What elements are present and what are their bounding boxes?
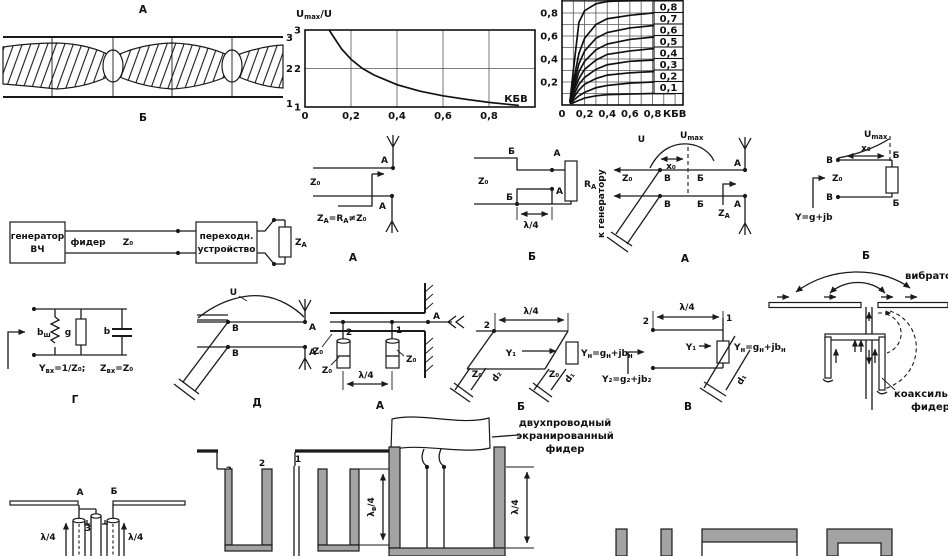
section-open [616,529,627,556]
y1-label: Y₁ [685,343,697,353]
line-section [467,331,568,369]
svg-text:0,2: 0,2 [342,111,360,122]
za-label: ZА [295,238,308,249]
diagram-stub-match-a: U Umax x₀ Z₀ В Б А В Б А ZА А [607,131,751,265]
z0-stub2-label: Z₀ [406,355,417,365]
shielded-label-1: двухпроводный [519,418,612,429]
figure-canvas: А 3 2 1 Б Umax/U КБВ 00,20,40,60,8123 КБ… [0,0,948,556]
caption: А [681,253,690,265]
diagram-stub-match-d: U В В А А Д [174,288,316,409]
svg-text:0: 0 [302,111,309,122]
label-2: 2 [286,64,293,75]
svg-text:0,2: 0,2 [540,77,558,88]
caption: Г [72,394,79,406]
point-a: А [433,312,440,322]
point-a: А [77,488,84,498]
dipole-arm-right [113,501,185,505]
caption: А [349,252,358,264]
svg-text:0,2: 0,2 [660,71,678,82]
chart-umax-kbv: Umax/U КБВ 00,20,40,60,8123 [294,9,535,122]
stub-right [529,369,566,402]
lambda-left: λ/4 [40,533,55,543]
ra-label: RА [584,180,597,191]
figure-page: А 3 2 1 Б Umax/U КБВ 00,20,40,60,8123 КБ… [0,0,948,556]
point-v1: В [826,156,833,166]
torn-tube [391,417,490,450]
point-a2: А [734,200,741,210]
label-2: 2 [259,459,265,469]
svg-text:0: 0 [559,109,566,120]
svg-text:0,3: 0,3 [660,60,678,71]
z0-label: Z₀ [622,174,633,184]
caption: А [376,400,385,412]
y1-label: Y₁ [505,349,517,359]
point-a-bottom: А [379,202,386,212]
point-v1: В [664,174,671,184]
label-3: 3 [286,33,293,44]
caption: Д [252,397,261,409]
u-label: U [638,135,645,145]
svg-text:0,1: 0,1 [660,83,678,94]
point-v2: В [826,193,833,203]
point-a1: А [734,159,741,169]
lambda-label: λ/4 [358,371,373,381]
diagram-sleeve-balun: А Б 3 λ/4 λ/4 [10,487,185,556]
lambda-dimension [517,207,552,220]
channel-left [225,469,272,551]
device-label-2: устройство [198,245,256,255]
diagram-reactive-match-b: Umax x₀ В Б В Б Z₀ Y=g+jb Б [794,130,900,262]
section-frame-slot [838,543,881,556]
load-resistor [566,342,578,364]
standing-wave-diagram: А 3 2 1 Б [3,4,293,124]
antenna-fork-icon [739,223,751,235]
lambda-label: λ/4 [523,221,538,231]
lambda-label: λ/4 [523,307,538,317]
load-resistor [717,341,729,363]
diagram-coax-plungers-a: 2 1 А Z₀ Z₀ Z₀ λ/4 А [313,283,464,412]
point-b: Б [111,487,118,497]
caption: В [684,401,692,413]
diagram-vibrator-coax: вибратор коаксиль [769,270,948,413]
device-label-1: переходн. [200,232,254,242]
label-1: 1 [295,455,301,465]
umax-label: Umax [864,130,888,141]
diagram-cross-sections [616,529,892,556]
matching-device-box [196,222,257,263]
voltage-curve [650,144,714,168]
point-b2: Б [893,199,900,209]
shorted-stub [607,170,660,252]
svg-text:0,4: 0,4 [660,48,678,59]
z0-right-label: Z₀ [549,370,560,380]
z0-line-label: Z₀ [313,347,324,357]
z0-label: Z₀ [310,178,321,188]
label-3: 3 [85,524,91,534]
caption: Б [517,401,525,413]
diagram-direct-feed-a: А Z₀ А ZА=RА≠Z₀ А [310,135,399,264]
x-axis-label: КБВ [504,94,527,105]
shielded-label-2: экранированный [516,431,614,442]
wall-hatching [425,283,433,378]
svg-text:0,4: 0,4 [388,111,406,122]
point-b2: Б [697,200,704,210]
transformer-section [517,189,552,204]
dipole-arm-left [10,501,78,505]
load-symbol [257,218,291,266]
z0-stub1-label: Z₀ [322,366,333,376]
point-v1: В [232,324,239,334]
inductor-branch [51,309,59,355]
yn-label: Yн=gн+jbн [580,349,633,360]
z0-label: Z₀ [478,177,489,187]
point-a1: А [309,323,316,333]
feeder-label: фидер [70,238,106,248]
lambda-label: λ/4 [511,499,521,514]
antenna-fork-icon [386,221,398,233]
point-1: 1 [726,314,732,324]
shield-body [389,447,505,556]
b-label: b [104,327,111,337]
svg-text:0,6: 0,6 [540,31,558,42]
stub-1-label: 1 [396,326,402,336]
point-v2: В [664,200,671,210]
point-a-top: А [554,149,561,159]
x0-label: x₀ [861,144,871,154]
coax-feeder-label-2: фидер [911,401,948,413]
lambda-dimension [653,311,723,330]
diagram-equivalent-circuit-g: bш g b Yвх=1/Z₀; Zвх=Z₀ Г [8,307,133,406]
bsh-label: bш [37,328,51,339]
stub-2-label: 2 [346,328,352,338]
diagram-shielded-feeder: двухпроводный экранированный фидер λ/4 [389,417,614,556]
za-label: ZА [718,209,731,220]
z0-left-label: Z₀ [472,370,483,380]
label-1: 1 [286,99,293,110]
svg-text:2: 2 [294,64,301,75]
svg-text:0,6: 0,6 [434,111,452,122]
yn-label: Yн=gн+jbн [733,343,786,354]
section-open [661,529,672,556]
shielded-label-3: фидер [546,443,585,455]
point-2: 2 [643,317,649,327]
antenna-fork-icon [299,358,311,370]
point-b1: Б [893,151,900,161]
generator-box [10,222,65,263]
point-b-top: Б [508,147,515,157]
point-a-top: А [381,156,388,166]
x-axis-label: КБВ [663,109,686,120]
chart-efficiency-family: КБВ 00,20,40,60,80,20,40,60,80,80,70,60,… [540,0,686,120]
z0-label: Z₀ [832,174,843,184]
load-resistor [886,167,898,193]
d1-label: d₁ [563,371,577,385]
channel-right [318,469,359,551]
zin-equation: Zвх=Z₀ [100,364,133,375]
coax-feeder-label-1: коаксильный [894,389,948,400]
caption: Б [862,250,870,262]
g-label: g [65,328,71,338]
diagram-quarter-wave-b: Б А Z₀ Б А RА λ/4 Б [474,147,597,263]
outer-arc [796,272,910,292]
point-2: 2 [484,321,490,331]
svg-text:0,4: 0,4 [540,54,558,65]
svg-text:0,7: 0,7 [660,14,678,25]
to-generator-label: к генератору [597,169,607,238]
lambda-label: λ/4 [679,303,694,313]
u-label: U [230,288,237,298]
point-b-bottom: Б [506,193,513,203]
umax-label: Umax [680,131,704,142]
z0-label: Z₀ [123,238,134,248]
d1-label: d₁ [735,373,749,387]
dipole-arm-right [878,303,948,308]
svg-text:1: 1 [294,103,301,114]
lambda-right: λ/4 [128,533,143,543]
block-diagram: генератор ВЧ фидер Z₀ переходн. устройст… [10,218,308,266]
y2-label: Y₂=g₂+jb₂ [601,375,651,385]
yin-equation: Yвх=1/Z₀; [38,364,85,375]
conductance-branch [76,309,86,355]
generator-label-2: ВЧ [30,245,44,255]
svg-text:0,8: 0,8 [480,111,498,122]
capacitor-branch [112,309,132,355]
diagram-two-stub-b: λ/4 2 Y₁ Yн=gн+jbн Z₀ d₂ Z₀ d₁ Б [450,307,633,413]
svg-text:0,4: 0,4 [598,109,616,120]
antenna-fork-icon [299,299,311,311]
balun-tubes [73,514,119,556]
svg-text:3: 3 [294,26,301,37]
label-top-a: А [139,4,148,16]
shorted-stub [174,322,228,400]
point-a-bottom: А [556,187,563,197]
svg-text:0,6: 0,6 [621,109,639,120]
antenna-fork-icon [739,137,751,149]
antenna-fork-icon [387,135,399,147]
svg-text:0,6: 0,6 [660,25,678,36]
chart-title: Umax/U [296,9,332,21]
coax-sleeve [823,334,887,394]
svg-text:0,8: 0,8 [644,109,662,120]
point-b1: Б [697,174,704,184]
svg-text:0,8: 0,8 [540,8,558,19]
d2-label: d₂ [490,370,504,384]
inner-arc [830,283,885,294]
svg-text:0,5: 0,5 [660,37,678,48]
svg-text:0,8: 0,8 [660,2,678,13]
section-top-bar [702,529,797,542]
vibrator-label: вибратор [905,270,948,282]
caption: Б [528,251,536,263]
lambda-label: λв/4 [367,497,378,517]
admittance-label: Y=g+jb [794,213,833,223]
load-resistor [565,161,577,201]
dipole-arm-left [769,303,861,308]
label-bottom-b: Б [139,112,147,124]
generator-label-1: генератор [11,232,65,242]
equation: ZА=RА≠Z₀ [317,214,367,225]
point-v2: В [232,349,239,359]
svg-text:0,2: 0,2 [576,109,594,120]
diagram-channel-balun: 2 1 3 λв/4 [197,451,390,556]
